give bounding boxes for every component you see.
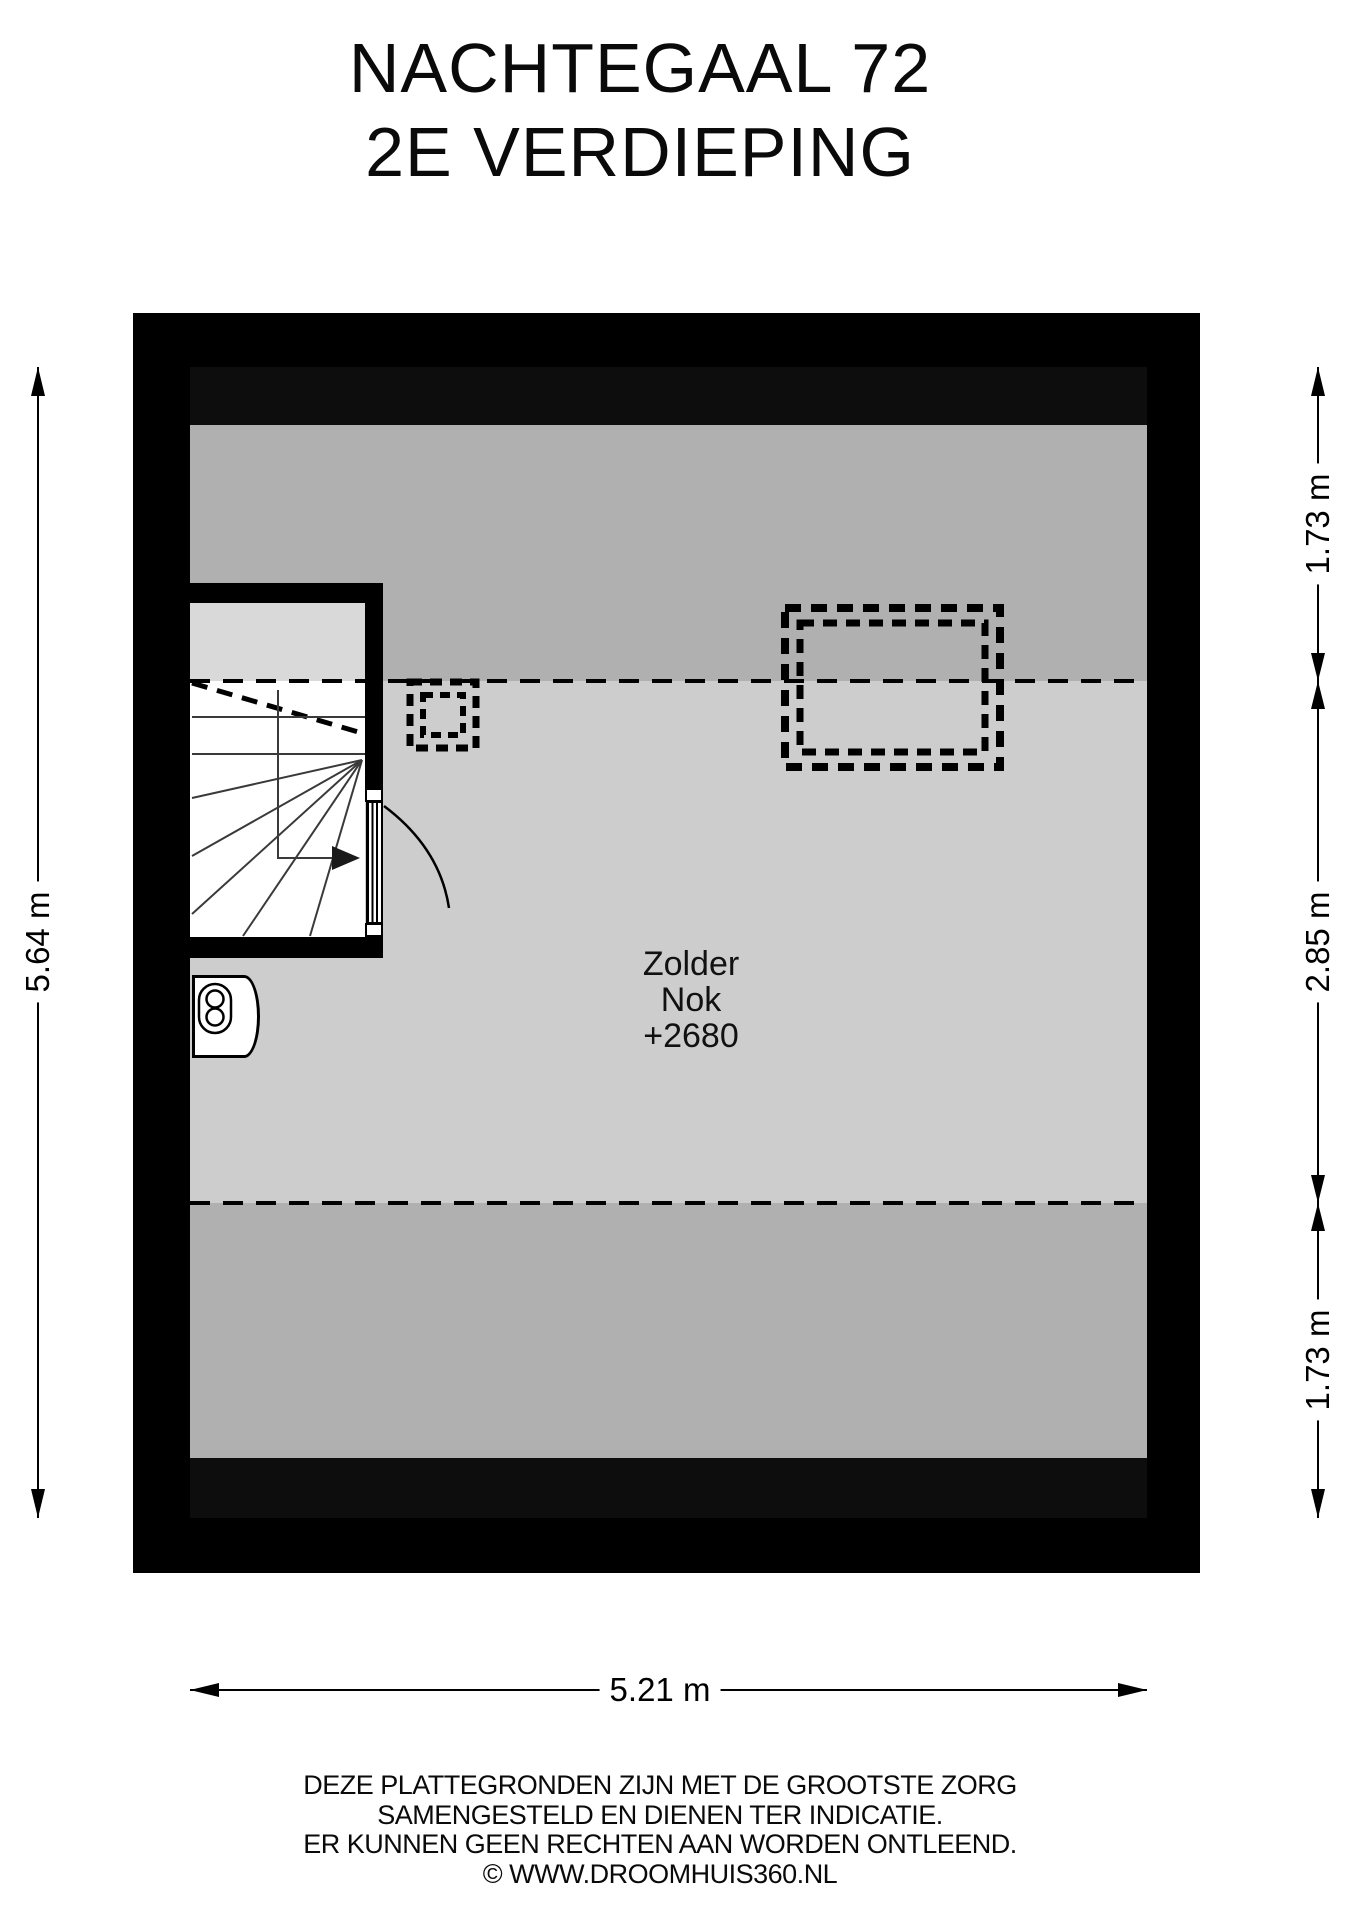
footer-disclaimer: DEZE PLATTEGRONDEN ZIJN MET DE GROOTSTE …	[0, 1771, 1320, 1889]
disclaimer-line3: ER KUNNEN GEEN RECHTEN AAN WORDEN ONTLEE…	[0, 1830, 1320, 1860]
disclaimer-line2: SAMENGESTELD EN DIENEN TER INDICATIE.	[0, 1801, 1320, 1831]
dimension-label-right-middle: 2.85 m	[1297, 882, 1339, 1003]
dimension-label-right-bottom: 1.73 m	[1297, 1300, 1339, 1421]
room-name: Zolder	[591, 946, 791, 982]
room-ridge-height: +2680	[591, 1018, 791, 1054]
disclaimer-line1: DEZE PLATTEGRONDEN ZIJN MET DE GROOTSTE …	[0, 1771, 1320, 1801]
copyright-line: © WWW.DROOMHUIS360.NL	[0, 1860, 1320, 1890]
dimension-label-left: 5.64 m	[17, 882, 59, 1003]
floor-plan-page: NACHTEGAAL 72 2E VERDIEPING	[0, 0, 1358, 1920]
door-swing-arc	[384, 806, 449, 908]
roof-window-large	[785, 608, 1000, 767]
roof-window-small	[410, 682, 476, 748]
dimension-label-bottom: 5.21 m	[600, 1669, 721, 1711]
room-label: Zolder Nok +2680	[591, 946, 791, 1054]
dimension-label-right-top: 1.73 m	[1297, 464, 1339, 585]
boiler-symbol	[199, 984, 231, 1033]
room-ridge-label: Nok	[591, 982, 791, 1018]
